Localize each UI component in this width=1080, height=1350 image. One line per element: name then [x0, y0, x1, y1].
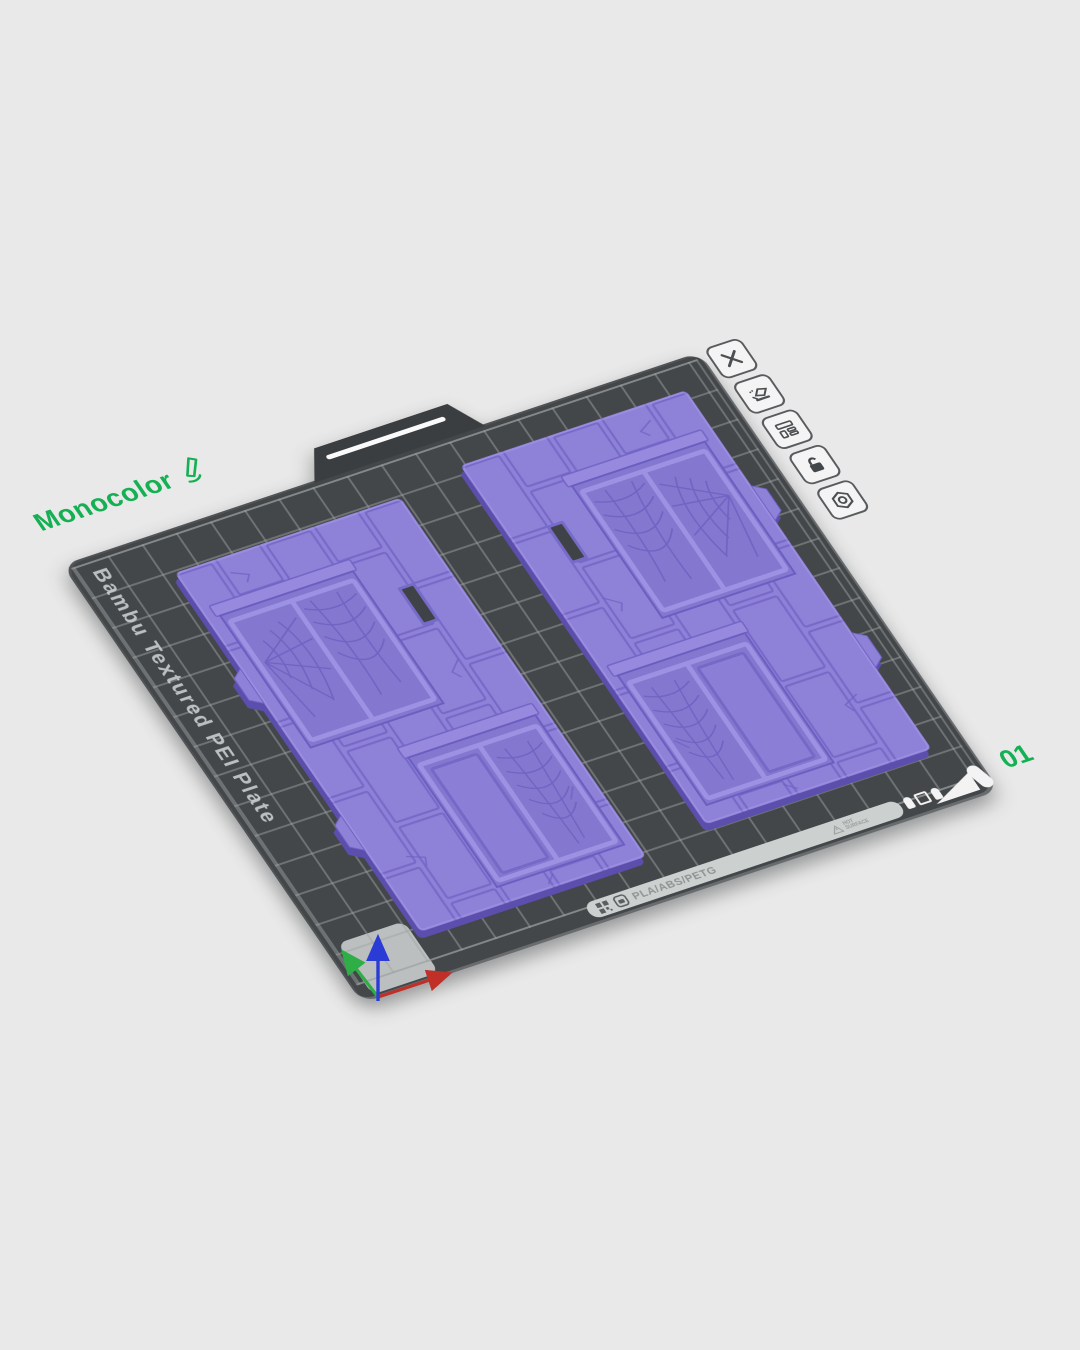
- close-icon: [712, 344, 751, 374]
- x-axis-red: [378, 974, 448, 997]
- home-icon: [611, 893, 631, 908]
- viewport-background: { "plate": { "label": "Monocolor", "numb…: [0, 0, 1080, 1350]
- nut-icon: [823, 485, 862, 515]
- plate-lock-button[interactable]: [786, 443, 844, 486]
- plate-brush-icon: [740, 379, 779, 409]
- plate-name-text: Monocolor: [28, 466, 181, 537]
- square-marking-icon: [913, 791, 933, 806]
- warning-triangle-icon: [829, 823, 845, 835]
- edit-pencil-icon[interactable]: [168, 450, 214, 486]
- build-plate-group: Bambu Textured PEI Plate PLA/ABS/PETG: [62, 352, 999, 1003]
- unlock-icon: [795, 450, 834, 480]
- plate-edit-button[interactable]: [731, 372, 789, 415]
- plate-layout-icon: [768, 414, 807, 444]
- qr-code-icon: [595, 900, 613, 914]
- world-axes-indicator: [310, 915, 480, 1025]
- build-plate[interactable]: Bambu Textured PEI Plate PLA/ABS/PETG: [62, 352, 999, 1003]
- plate-settings-button[interactable]: [814, 478, 872, 521]
- y-axis-green: [344, 953, 378, 997]
- plate-layout-button[interactable]: [758, 408, 816, 451]
- plate-number-label: 01: [993, 739, 1039, 774]
